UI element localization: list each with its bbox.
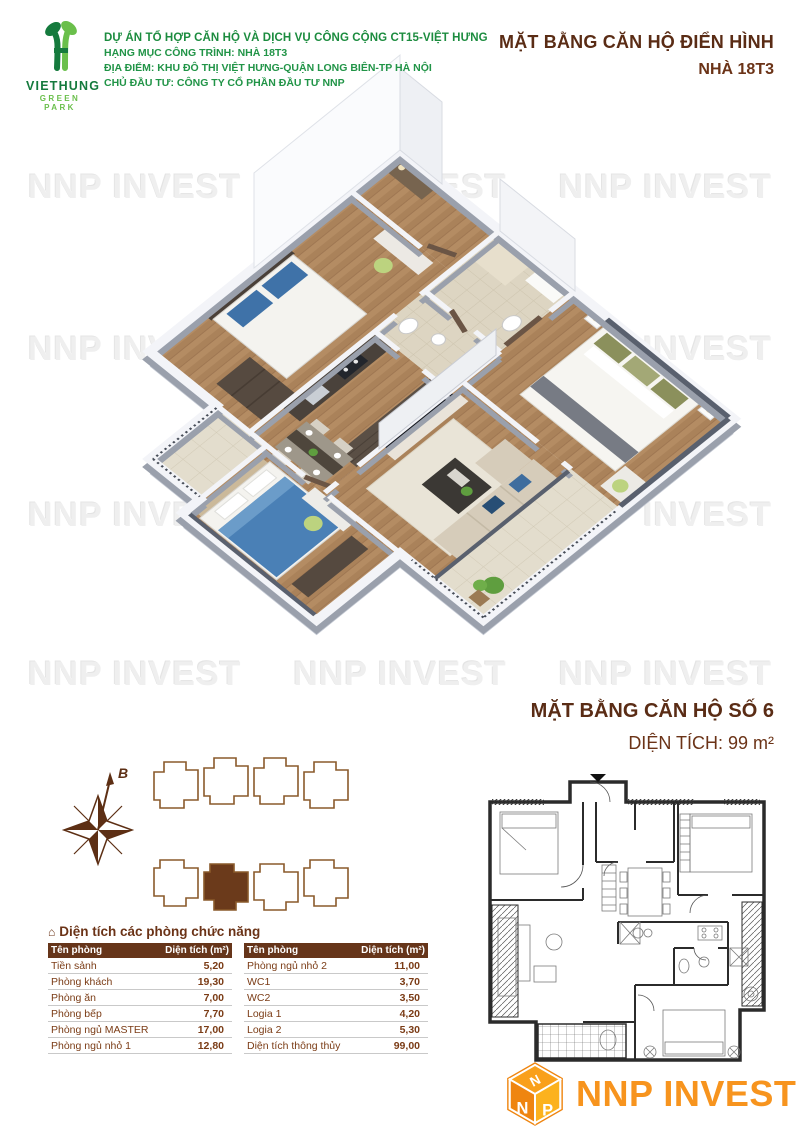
balcony-bottom bbox=[538, 1024, 626, 1058]
column-header-area: Diện tích (m²) bbox=[162, 943, 232, 958]
viethung-logo: VIETHUNG GREEN PARK bbox=[26, 20, 94, 112]
table-row: Diện tích thông thủy99,00 bbox=[244, 1038, 428, 1054]
table-row: Phòng ngủ nhỏ 112,80 bbox=[48, 1038, 232, 1054]
table-row: Phòng khách19,30 bbox=[48, 974, 232, 990]
viethung-logo-icon bbox=[27, 20, 93, 72]
room-table-title: Diện tích các phòng chức năng bbox=[59, 924, 260, 939]
structural-wall bbox=[628, 799, 694, 805]
svg-text:P: P bbox=[542, 1101, 553, 1119]
brand-tagline: GREEN PARK bbox=[26, 94, 94, 112]
table-row: Logia 14,20 bbox=[244, 1006, 428, 1022]
floorplan-2d-drawing bbox=[478, 770, 778, 1062]
highlighted-unit bbox=[204, 864, 248, 910]
page-title: MẶT BẰNG CĂN HỘ ĐIỂN HÌNH bbox=[499, 32, 774, 53]
table-row: WC13,70 bbox=[244, 974, 428, 990]
nnp-invest-logo: N N P NNP INVEST bbox=[504, 1060, 796, 1128]
column-header-name: Tên phòng bbox=[244, 943, 358, 958]
compass-icon: B bbox=[64, 765, 132, 864]
column-header-area: Diện tích (m²) bbox=[358, 943, 428, 958]
table-row: WC23,50 bbox=[244, 990, 428, 1006]
unit-title: MẶT BẰNG CĂN HỘ SỐ 6 bbox=[531, 700, 774, 723]
project-line: ĐỊA ĐIỂM: KHU ĐÔ THỊ VIỆT HƯNG-QUẬN LONG… bbox=[104, 61, 488, 76]
loggia-left bbox=[492, 905, 518, 1017]
table-row: Phòng ăn7,00 bbox=[48, 990, 232, 1006]
table-row: Tiền sảnh5,20 bbox=[48, 958, 232, 974]
nnp-invest-wordmark: NNP INVEST bbox=[576, 1073, 796, 1115]
unit-area: DIỆN TÍCH: 99 m² bbox=[531, 733, 774, 754]
table-row: Logia 25,30 bbox=[244, 1022, 428, 1038]
page-subtitle: NHÀ 18T3 bbox=[499, 61, 774, 79]
project-line: DỰ ÁN TỔ HỢP CĂN HỘ VÀ DỊCH VỤ CÔNG CỘNG… bbox=[104, 30, 488, 46]
floorplan-3d-render bbox=[0, 0, 800, 770]
brochure-page: NNP INVEST NNP INVEST NNP INVEST NNP INV… bbox=[0, 0, 800, 1132]
header: VIETHUNG GREEN PARK DỰ ÁN TỔ HỢP CĂN HỘ … bbox=[26, 20, 488, 112]
room-table-title-row: ⌂Diện tích các phòng chức năng bbox=[48, 924, 428, 939]
room-area-table-section: ⌂Diện tích các phòng chức năng Tên phòng… bbox=[48, 924, 428, 1054]
nnp-cube-icon: N N P bbox=[504, 1060, 566, 1128]
room-table-right: Tên phòng Diện tích (m²) Phòng ngủ nhỏ 2… bbox=[244, 943, 428, 1054]
room-table-left: Tên phòng Diện tích (m²) Tiền sảnh5,20 P… bbox=[48, 943, 232, 1054]
project-line: HẠNG MỤC CÔNG TRÌNH: NHÀ 18T3 bbox=[104, 46, 488, 61]
column-header-name: Tên phòng bbox=[48, 943, 162, 958]
unit-section: MẶT BẰNG CĂN HỘ SỐ 6 DIỆN TÍCH: 99 m² bbox=[531, 700, 774, 754]
table-row: Phòng ngủ nhỏ 211,00 bbox=[244, 958, 428, 974]
structural-wall bbox=[492, 799, 544, 805]
structural-wall bbox=[724, 799, 760, 805]
project-info: DỰ ÁN TỔ HỢP CĂN HỘ VÀ DỊCH VỤ CÔNG CỘNG… bbox=[104, 20, 488, 112]
house-icon: ⌂ bbox=[48, 925, 55, 939]
table-row: Phòng bếp7,70 bbox=[48, 1006, 232, 1022]
compass-north-label: B bbox=[118, 765, 128, 781]
table-row: Phòng ngủ MASTER17,00 bbox=[48, 1022, 232, 1038]
svg-text:N: N bbox=[516, 1099, 528, 1117]
building-outline bbox=[154, 758, 348, 910]
project-line: CHỦ ĐẦU TƯ: CÔNG TY CỔ PHẦN ĐẦU TƯ NNP bbox=[104, 76, 488, 91]
building-key-plan: B bbox=[60, 752, 350, 917]
brand-name: VIETHUNG bbox=[26, 79, 94, 93]
page-title-block: MẶT BẰNG CĂN HỘ ĐIỂN HÌNH NHÀ 18T3 bbox=[499, 32, 774, 79]
